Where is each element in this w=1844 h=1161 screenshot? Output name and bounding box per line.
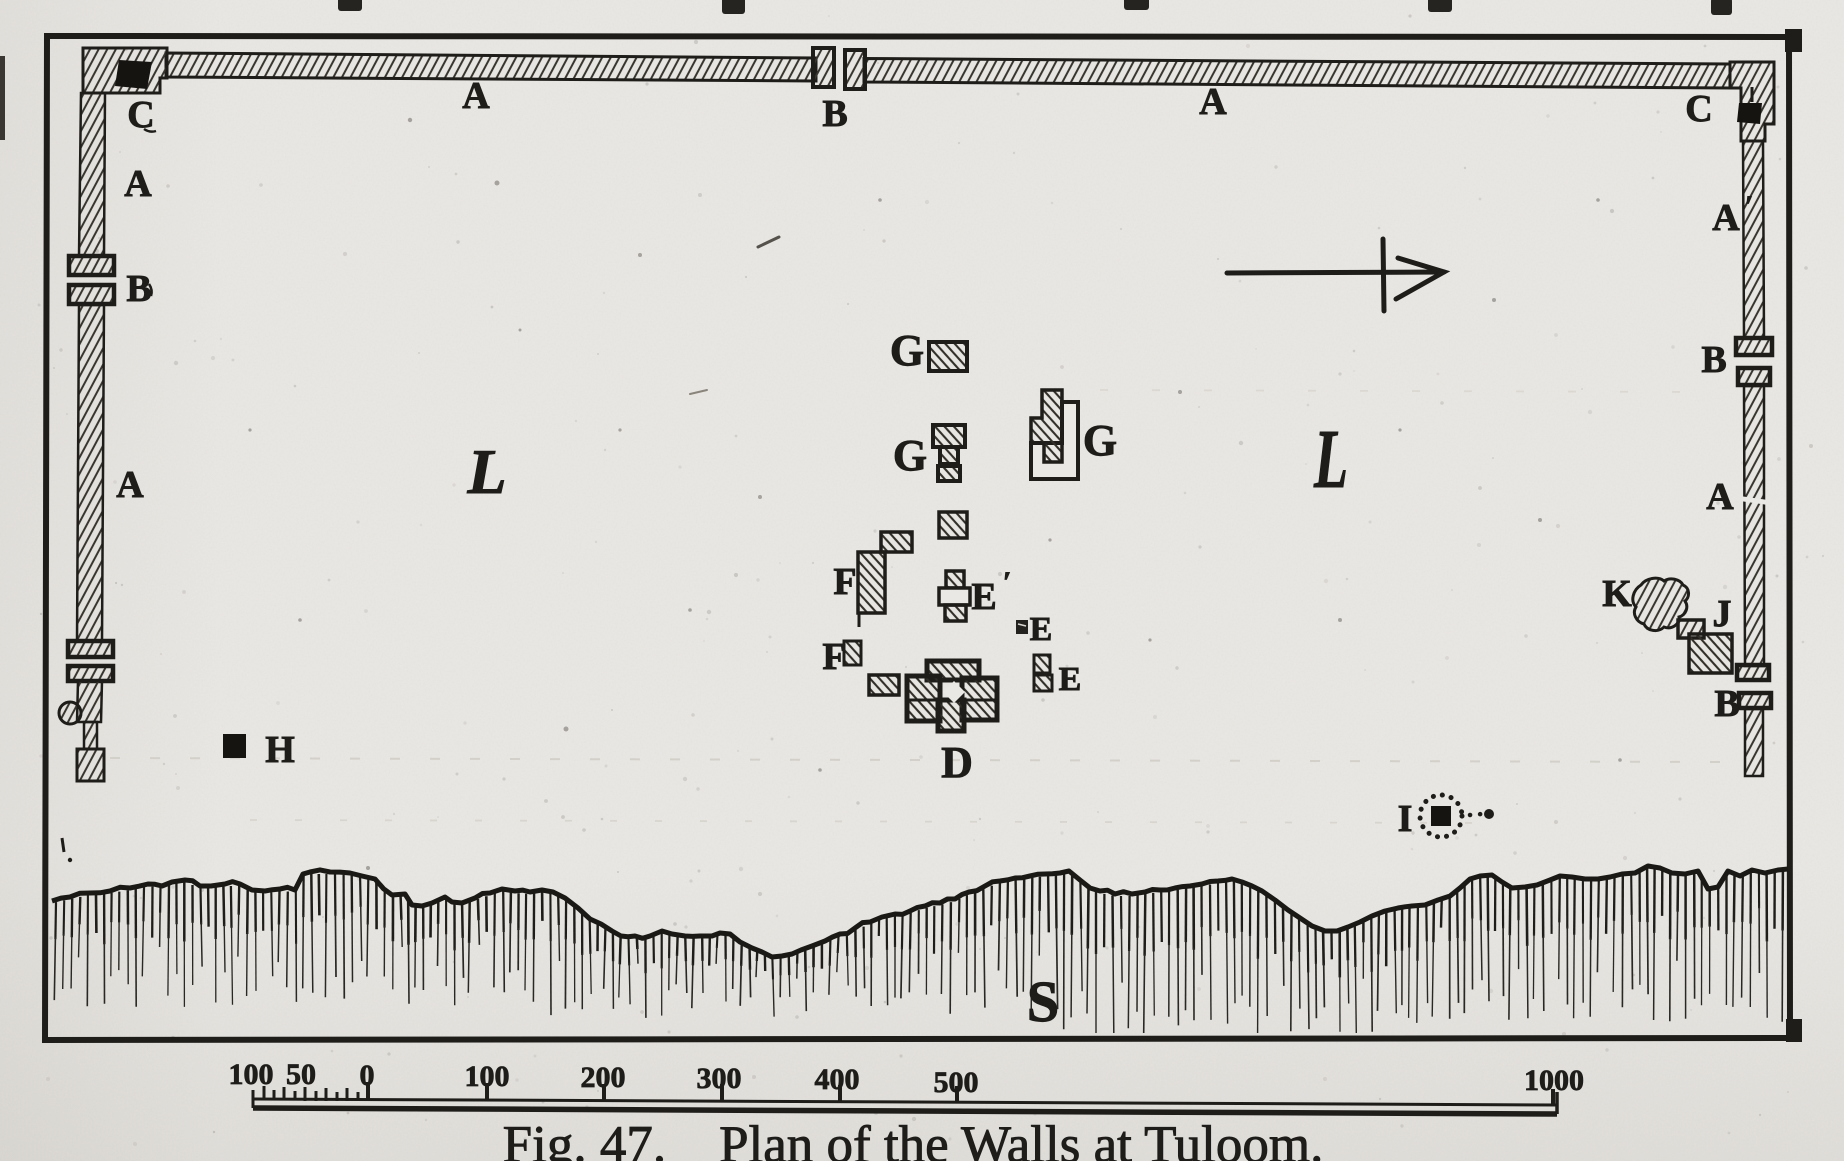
svg-text:B: B: [822, 93, 847, 135]
svg-text:G: G: [893, 431, 927, 480]
svg-text:F: F: [822, 636, 845, 678]
svg-text:B: B: [1714, 683, 1739, 725]
svg-text:A: A: [1199, 81, 1227, 123]
svg-text:G: G: [1083, 416, 1117, 465]
svg-text:G: G: [890, 326, 924, 375]
svg-text:K: K: [1602, 573, 1632, 615]
svg-text:B: B: [126, 268, 151, 310]
svg-text:L: L: [466, 436, 506, 507]
svg-text:C: C: [1685, 88, 1712, 130]
svg-text:B: B: [1701, 339, 1726, 381]
svg-text:A: A: [1706, 476, 1734, 518]
svg-text:L: L: [1313, 413, 1348, 506]
svg-text:J: J: [1713, 593, 1732, 635]
svg-text:′: ′: [1003, 566, 1011, 599]
svg-text:400: 400: [815, 1063, 860, 1096]
svg-text:A: A: [124, 163, 152, 205]
svg-text:50: 50: [286, 1058, 316, 1091]
svg-text:C: C: [127, 94, 154, 136]
svg-text:Fig. 47. Plan of the Walls at: Fig. 47. Plan of the Walls at Tuloom.: [503, 1116, 1324, 1161]
svg-text:100: 100: [229, 1058, 274, 1091]
svg-text:A: A: [1712, 197, 1740, 239]
svg-text:D: D: [941, 738, 973, 787]
svg-text:E: E: [971, 576, 996, 618]
svg-text:I: I: [1398, 798, 1413, 840]
svg-text:F: F: [833, 561, 856, 603]
svg-text:E: E: [1030, 611, 1053, 648]
svg-text:300: 300: [697, 1062, 742, 1095]
svg-text:S: S: [1027, 969, 1059, 1034]
svg-text:E: E: [1059, 661, 1082, 698]
svg-text:A: A: [462, 75, 490, 117]
svg-text:A: A: [116, 464, 144, 506]
svg-text:H: H: [265, 729, 295, 771]
svg-text:′: ′: [1745, 190, 1753, 223]
